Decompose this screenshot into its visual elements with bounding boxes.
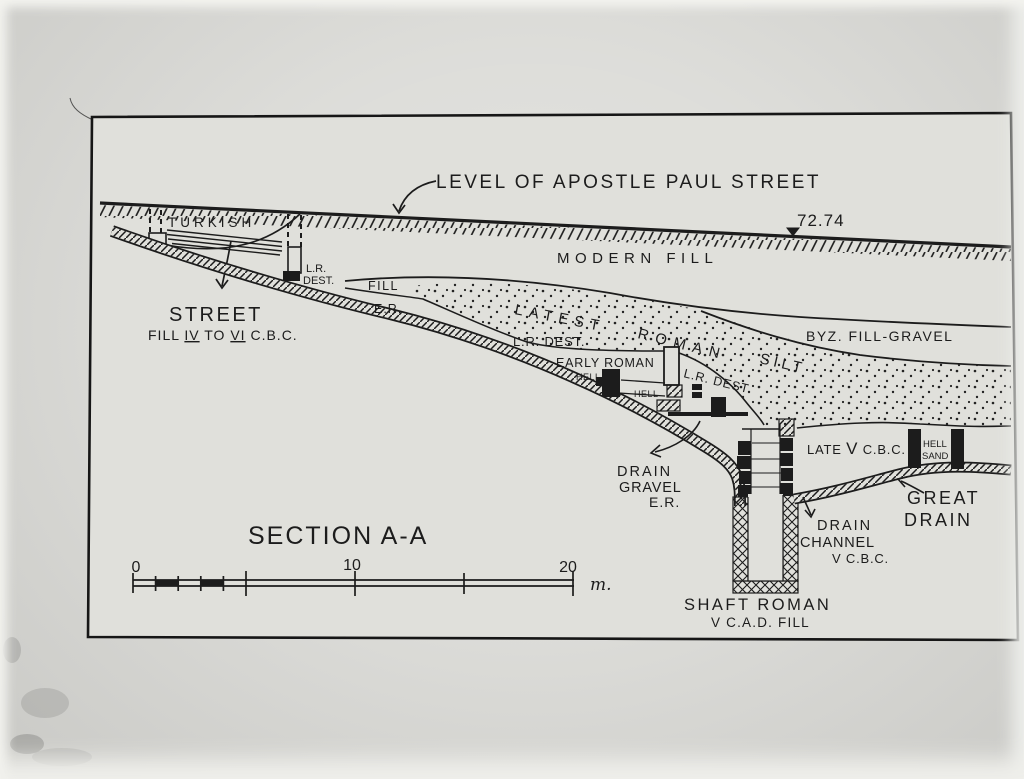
er-wedge-label: E.R.: [374, 302, 402, 316]
hellenistic-block-c: [779, 419, 794, 436]
hell-label-a: HELL: [576, 372, 601, 382]
drain-channel-label-3: V C.B.C.: [832, 551, 889, 566]
scale-unit: m.: [590, 575, 612, 595]
scale-tick-20: 20: [559, 559, 577, 576]
fill-wedge-label: FILL: [368, 279, 399, 293]
street-fill-label: FILL IV TO VI C.B.C.: [148, 327, 298, 343]
shaft-label-1: SHAFT ROMAN: [684, 596, 831, 614]
hell-label-b: HELL: [634, 389, 659, 399]
great-drain-label-1: GREAT: [907, 488, 980, 508]
drain-gravel-label-1: DRAIN: [617, 464, 672, 480]
mid-slope-pier: [664, 347, 679, 385]
lr-dest-turkish-label-2: DEST.: [303, 275, 334, 287]
hellenistic-block-b: [657, 400, 680, 411]
lr-dest-mid-label: L.R. DEST.: [513, 334, 585, 349]
early-roman-label: EARLY ROMAN: [556, 356, 655, 370]
floor-slab-line: [668, 412, 748, 416]
section-title: SECTION A-A: [248, 522, 428, 550]
roman-shaft: [733, 494, 798, 593]
hellenistic-block-a: [667, 385, 682, 397]
street-level-label: LEVEL OF APOSTLE PAUL STREET: [436, 172, 821, 193]
lr-dest-pier-footing: [283, 271, 300, 281]
hell-sand-label-2: SAND: [922, 451, 949, 462]
elevation-value: 72.74: [797, 211, 845, 230]
section-drawing: LEVEL OF APOSTLE PAUL STREET 72.74 MODER…: [0, 0, 1024, 779]
scale-tick-0: 0: [132, 559, 141, 576]
scratch-mark: [70, 98, 93, 120]
great-drain-label-2: DRAIN: [904, 510, 973, 530]
drain-channel-label-1: DRAIN: [817, 518, 872, 534]
modern-fill-label: MODERN FILL: [557, 250, 718, 267]
hell-sand-label-1: HELL: [923, 439, 947, 450]
lr-dest-pier: [288, 247, 301, 273]
lr-dest-turkish-label-1: L.R.: [306, 263, 326, 275]
drain-channel-label-2: CHANNEL: [800, 535, 875, 551]
street-fill-heading: STREET: [169, 304, 263, 326]
byz-fill-gravel-label: BYZ. FILL-GRAVEL: [806, 328, 953, 344]
drain-gravel-label-3: E.R.: [649, 494, 680, 510]
photograph-of-section-drawing: LEVEL OF APOSTLE PAUL STREET 72.74 MODER…: [0, 0, 1024, 779]
shaft-label-2: V C.A.D. FILL: [711, 615, 810, 630]
early-roman-wall: [602, 369, 620, 397]
turkish-label: TURKISH: [168, 215, 255, 230]
scale-tick-10: 10: [343, 557, 361, 574]
late-v-cbc-label: LATE V C.B.C.: [807, 439, 906, 458]
